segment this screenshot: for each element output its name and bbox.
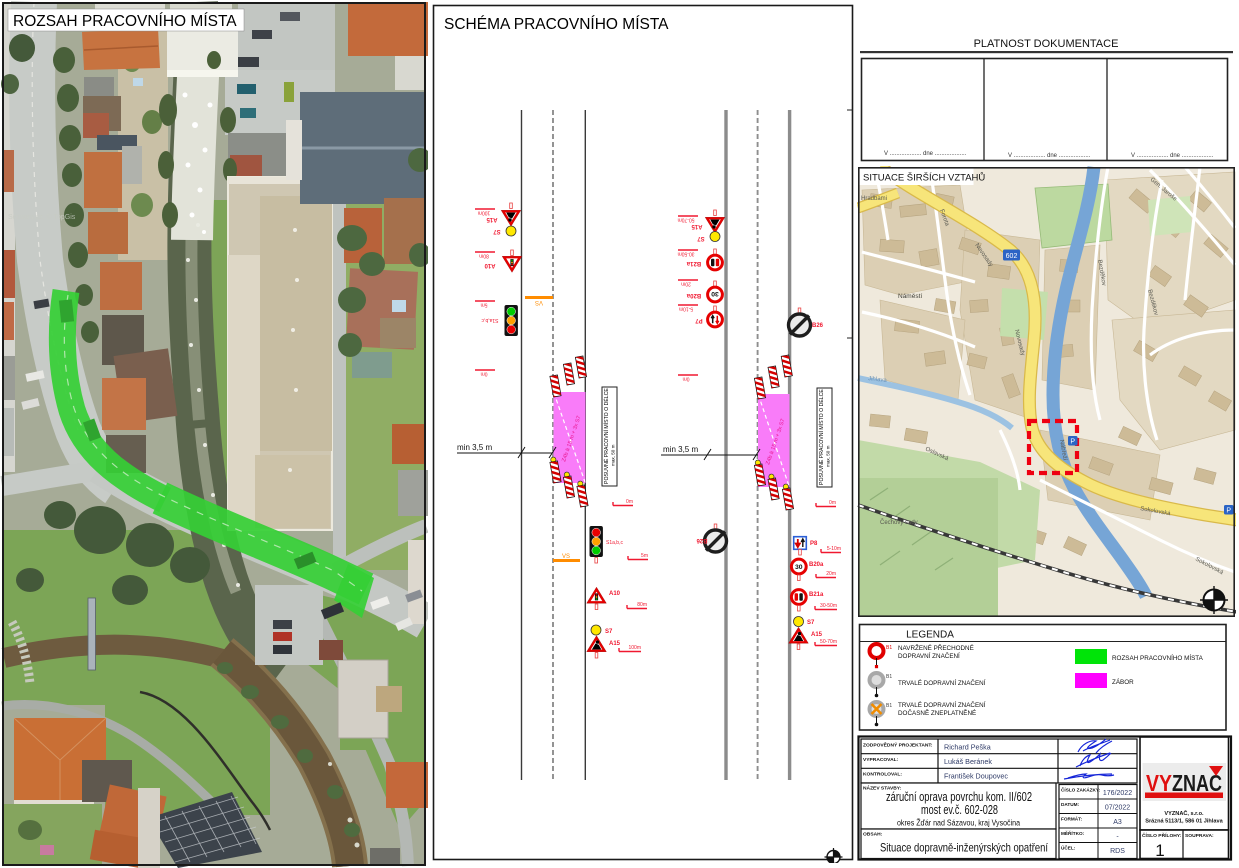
svg-text:P: P [1226,508,1231,515]
svg-text:ZÁBOR: ZÁBOR [1112,677,1134,686]
svg-text:5m: 5m [641,553,648,559]
svg-text:KONTROLOVAL:: KONTROLOVAL: [863,772,902,778]
svg-text:most ev.č. 602-028: most ev.č. 602-028 [921,803,998,817]
svg-text:A3: A3 [1113,819,1122,826]
svg-text:0m: 0m [683,376,690,382]
svg-text:602: 602 [1006,253,1018,260]
svg-text:PLATNOST DOKUMENTACE: PLATNOST DOKUMENTACE [974,38,1119,50]
svg-text:B21a: B21a [809,592,824,598]
svg-text:S7: S7 [605,629,613,635]
svg-text:V ................... dne ....: V ................... dne ..............… [1008,153,1091,159]
svg-text:A15: A15 [691,223,703,229]
svg-text:P: P [1070,439,1075,446]
svg-text:Richard Peška: Richard Peška [944,743,991,752]
svg-text:ČÍSLO ZAKÁZKY:: ČÍSLO ZAKÁZKY: [1061,786,1101,793]
svg-text:S1a,b,c: S1a,b,c [481,317,498,323]
svg-text:80m: 80m [637,602,647,608]
svg-text:ROZSAH PRACOVNÍHO MÍSTA: ROZSAH PRACOVNÍHO MÍSTA [13,13,237,30]
svg-text:VY: VY [1146,770,1172,796]
svg-text:07/2022: 07/2022 [1105,805,1130,812]
svg-text:B1: B1 [886,674,892,680]
svg-text:RDS: RDS [1110,848,1125,855]
svg-text:A10: A10 [484,262,496,268]
svg-text:20m: 20m [826,571,836,577]
svg-text:TRVALÉ DOPRAVNÍ ZNAČENÍ: TRVALÉ DOPRAVNÍ ZNAČENÍ [898,700,986,709]
svg-text:V ................... dne ....: V ................... dne ..............… [884,151,967,157]
svg-text:100m: 100m [628,645,641,651]
svg-text:S7: S7 [493,228,501,234]
svg-text:5-10m: 5-10m [679,306,693,312]
svg-text:ÚČEL:: ÚČEL: [1061,845,1076,851]
svg-text:A15: A15 [609,641,621,647]
svg-text:B20a: B20a [809,562,824,568]
svg-text:1: 1 [1155,841,1164,860]
svg-text:POSUVNÉ PRACOVNÍ MÍSTO O DÉLCE: POSUVNÉ PRACOVNÍ MÍSTO O DÉLCE [603,388,610,484]
svg-text:Hradbami: Hradbami [861,196,887,202]
svg-text:B1: B1 [886,645,892,651]
svg-text:SCHÉMA PRACOVNÍHO MÍSTA: SCHÉMA PRACOVNÍHO MÍSTA [444,16,669,33]
svg-text:záruční oprava povrchu kom. II: záruční oprava povrchu kom. II/602 [886,790,1032,804]
svg-text:B20a: B20a [686,292,701,298]
svg-text:0m: 0m [829,500,836,506]
svg-text:max. 50 m: max. 50 m [611,444,616,466]
svg-text:VS: VS [562,554,570,560]
svg-text:0m: 0m [481,371,488,377]
svg-text:20m: 20m [681,281,691,287]
svg-text:B1: B1 [886,703,892,709]
svg-text:50-70m: 50-70m [820,639,837,645]
svg-text:TRVALÉ DOPRAVNÍ ZNAČENÍ: TRVALÉ DOPRAVNÍ ZNAČENÍ [898,678,986,687]
svg-text:DOPRAVNÍ ZNAČENÍ: DOPRAVNÍ ZNAČENÍ [898,651,960,660]
svg-text:P7: P7 [695,317,703,323]
svg-text:OBSAH:: OBSAH: [863,832,883,838]
svg-text:30-50m: 30-50m [820,603,837,609]
svg-text:B26: B26 [812,323,824,329]
svg-text:NAVRŽENÉ PŘECHODNÉ: NAVRŽENÉ PŘECHODNÉ [898,643,974,652]
svg-text:A15: A15 [486,216,498,222]
svg-text:30-50m: 30-50m [678,251,695,257]
svg-text:DATUM:: DATUM: [1061,802,1080,807]
svg-text:ROZSAH PRACOVNÍHO MÍSTA: ROZSAH PRACOVNÍHO MÍSTA [1112,653,1204,662]
svg-text:S7: S7 [697,235,705,241]
svg-text:SOUPRAVA:: SOUPRAVA: [1185,833,1214,839]
svg-text:POSUVNÉ PRACOVNÍ MÍSTO O DÉLCE: POSUVNÉ PRACOVNÍ MÍSTO O DÉLCE [818,389,825,485]
svg-text:Situace dopravně-inženýrských: Situace dopravně-inženýrských opatření [880,841,1049,855]
svg-text:B26: B26 [696,537,708,543]
svg-text:Čechovy sady: Čechovy sady [880,519,918,526]
svg-text:DOČASNĚ ZNEPLATNĚNÉ: DOČASNĚ ZNEPLATNĚNÉ [898,708,976,717]
svg-text:S7: S7 [807,620,815,626]
svg-text:František Doupovec: František Doupovec [944,772,1008,781]
svg-text:ZNAC: ZNAC [1172,770,1222,796]
svg-text:B21a: B21a [686,260,701,266]
svg-text:VYZNAČ, s.r.o.: VYZNAČ, s.r.o. [1164,810,1204,817]
svg-text:P8: P8 [810,541,818,547]
svg-text:A10: A10 [609,591,621,597]
svg-text:176/2022: 176/2022 [1103,790,1132,797]
svg-text:VS: VS [535,299,543,305]
svg-text:S1a,b,c: S1a,b,c [606,540,623,546]
svg-text:FORMÁT:: FORMÁT: [1061,816,1083,822]
svg-text:Srázná 5113/1, 586 01 Jihlava: Srázná 5113/1, 586 01 Jihlava [1145,819,1223,825]
svg-text:VYPRACOVAL:: VYPRACOVAL: [863,757,899,763]
svg-text:A15: A15 [811,632,823,638]
svg-text:min 3,5 m: min 3,5 m [457,443,492,452]
svg-text:Náměstí: Náměstí [898,293,922,300]
svg-text:MĚŘÍTKO:: MĚŘÍTKO: [1061,829,1085,836]
svg-text:5m: 5m [481,302,488,308]
svg-text:min 3,5 m: min 3,5 m [663,445,698,454]
svg-text:5-10m: 5-10m [827,546,841,552]
svg-text:Seznam.cz, © TopGis: Seznam.cz, © TopGis [8,213,76,221]
svg-text:50-70m: 50-70m [678,217,695,223]
svg-text:100m: 100m [478,210,491,216]
svg-text:0m: 0m [626,499,633,505]
svg-text:V ................... dne ....: V ................... dne ..............… [1131,153,1214,159]
svg-text:Lukáš Beránek: Lukáš Beránek [944,757,992,766]
svg-text:SITUACE ŠIRŠÍCH VZTAHŮ: SITUACE ŠIRŠÍCH VZTAHŮ [863,172,985,184]
svg-text:LEGENDA: LEGENDA [906,630,954,641]
svg-text:okres Žďár nad Sázavou, kraj V: okres Žďár nad Sázavou, kraj Vysočina [897,818,1020,828]
svg-text:max. 50 m: max. 50 m [826,445,831,467]
svg-text:80m: 80m [479,253,489,259]
